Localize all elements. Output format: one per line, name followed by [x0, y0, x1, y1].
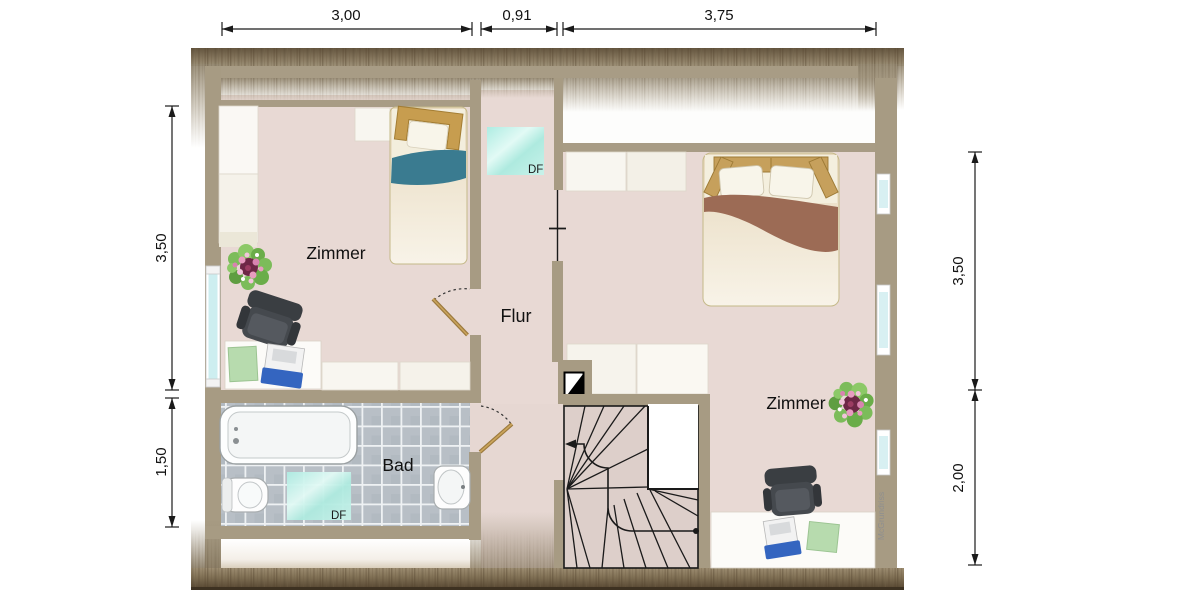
svg-text:3,50: 3,50 [153, 233, 170, 262]
svg-text:1,50: 1,50 [153, 447, 170, 476]
svg-text:DF: DF [331, 510, 346, 522]
svg-text:Zimmer: Zimmer [306, 243, 365, 263]
svg-text:3,50: 3,50 [950, 256, 967, 285]
svg-text:Zimmer: Zimmer [766, 393, 825, 413]
svg-text:3,75: 3,75 [704, 7, 733, 24]
svg-text:0,91: 0,91 [502, 7, 531, 24]
svg-text:Bad: Bad [382, 455, 413, 475]
svg-text:2,00: 2,00 [950, 463, 967, 492]
svg-text:3,00: 3,00 [331, 7, 360, 24]
svg-text:McGrundriss: McGrundriss [876, 492, 886, 540]
svg-text:DF: DF [528, 164, 543, 176]
svg-text:Flur: Flur [501, 306, 532, 326]
